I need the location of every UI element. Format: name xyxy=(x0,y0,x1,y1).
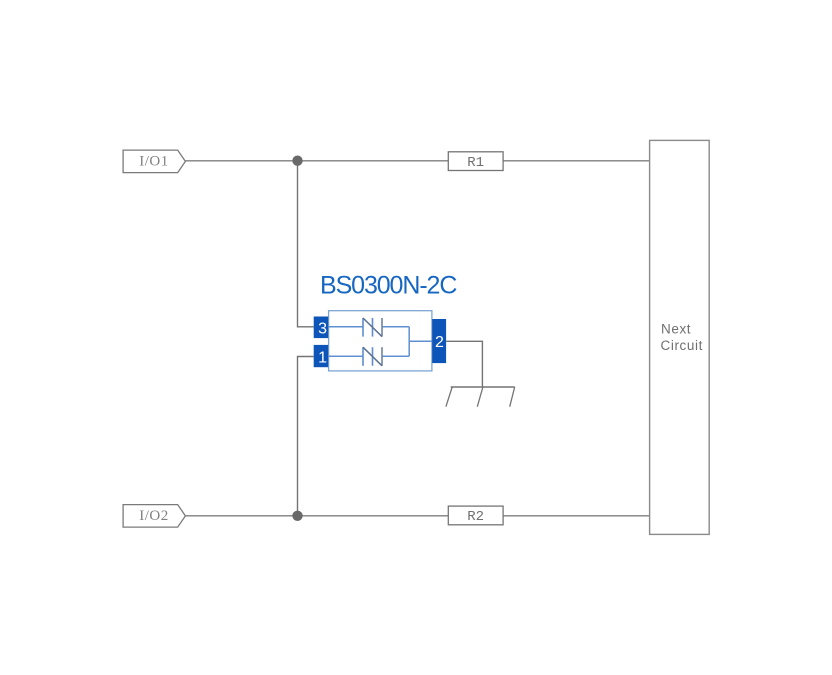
svg-text:Circuit: Circuit xyxy=(661,338,703,353)
svg-text:BS0300N-2C: BS0300N-2C xyxy=(320,271,457,299)
svg-text:2: 2 xyxy=(435,334,444,351)
svg-text:I/O1: I/O1 xyxy=(139,153,169,169)
svg-text:I/O2: I/O2 xyxy=(139,508,169,524)
svg-text:Next: Next xyxy=(661,321,691,336)
svg-text:3: 3 xyxy=(318,320,327,337)
svg-text:1: 1 xyxy=(318,349,327,366)
svg-text:R1: R1 xyxy=(467,155,484,171)
svg-text:R2: R2 xyxy=(467,509,484,525)
